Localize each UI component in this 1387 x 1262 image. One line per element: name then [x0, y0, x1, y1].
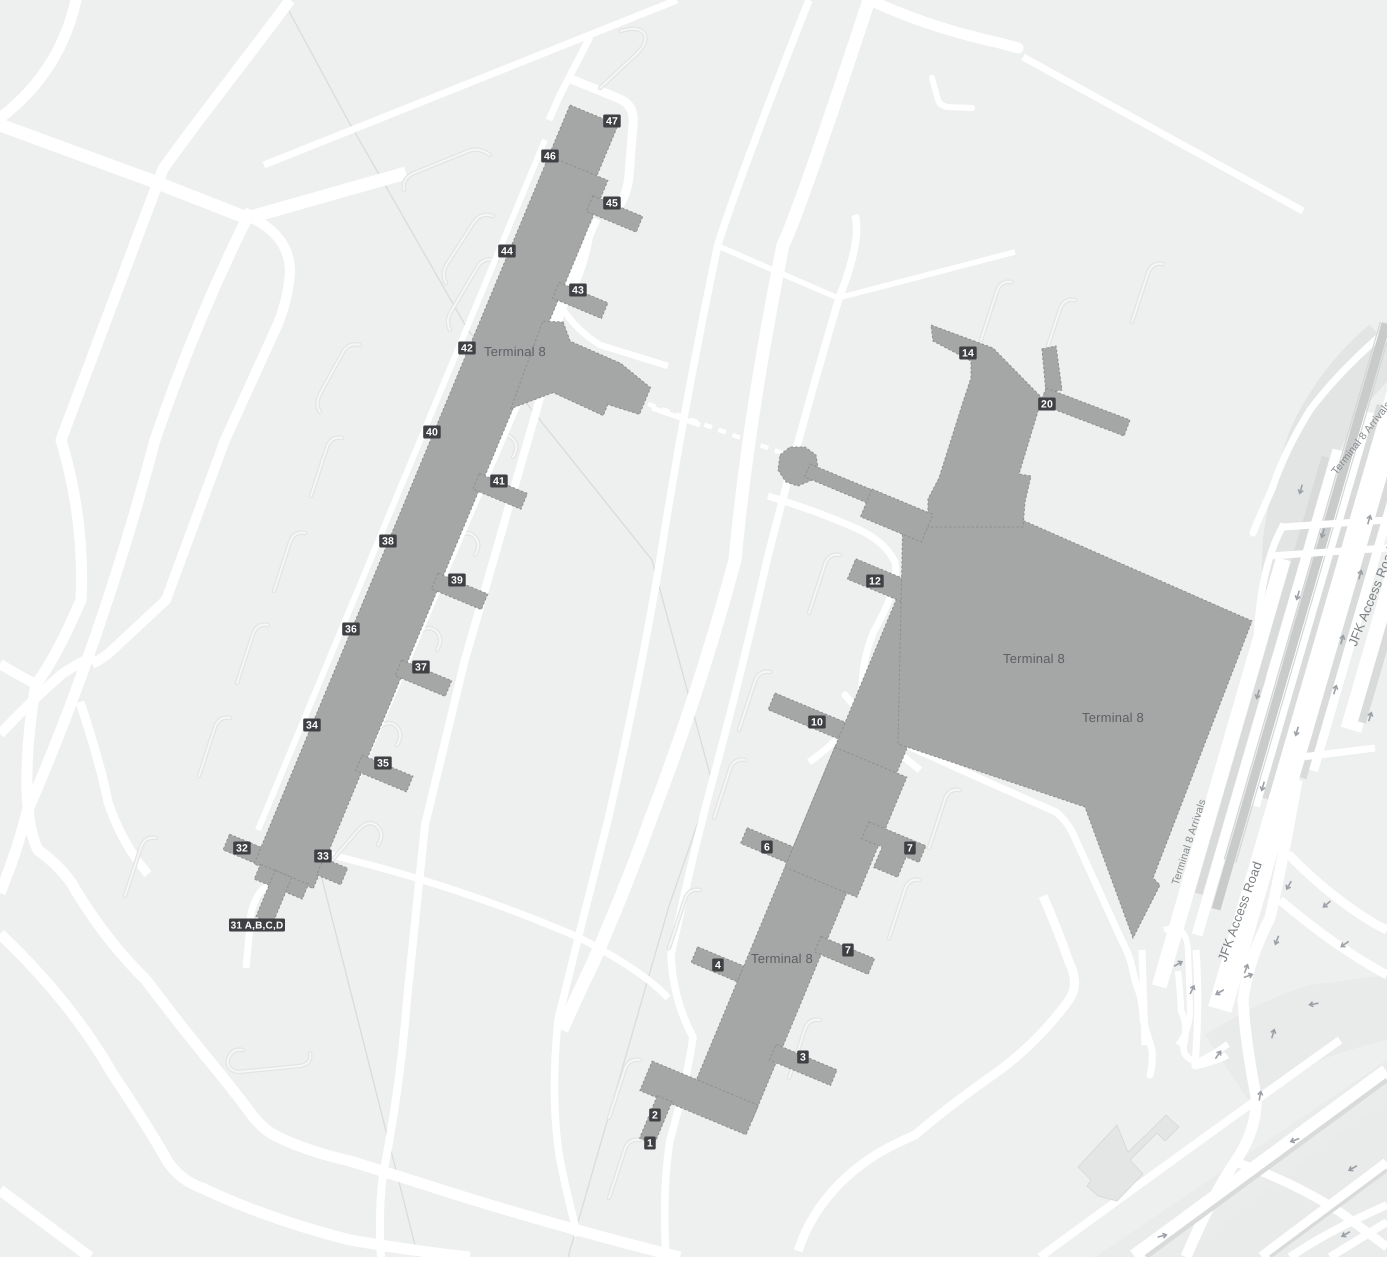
- svg-text:20: 20: [1041, 399, 1053, 411]
- svg-text:3: 3: [800, 1052, 806, 1064]
- svg-text:44: 44: [501, 246, 513, 258]
- svg-text:6: 6: [764, 842, 770, 854]
- svg-text:10: 10: [811, 717, 823, 729]
- svg-text:47: 47: [606, 116, 618, 128]
- svg-text:35: 35: [377, 758, 389, 770]
- svg-text:36: 36: [345, 624, 357, 636]
- svg-text:12: 12: [869, 576, 881, 588]
- svg-text:Terminal 8: Terminal 8: [1003, 651, 1065, 666]
- svg-text:31 A,B,C,D: 31 A,B,C,D: [231, 921, 284, 932]
- svg-text:40: 40: [426, 427, 438, 439]
- svg-text:Terminal 8: Terminal 8: [1082, 710, 1144, 725]
- svg-text:38: 38: [382, 536, 394, 548]
- svg-text:33: 33: [317, 851, 329, 863]
- svg-text:32: 32: [236, 843, 248, 855]
- svg-text:Terminal 8: Terminal 8: [484, 344, 546, 359]
- svg-text:45: 45: [606, 198, 618, 210]
- svg-text:41: 41: [493, 476, 505, 488]
- svg-text:7: 7: [907, 843, 913, 855]
- svg-text:14: 14: [962, 348, 974, 360]
- svg-text:37: 37: [415, 662, 427, 674]
- svg-text:42: 42: [461, 343, 473, 355]
- svg-text:39: 39: [451, 575, 463, 587]
- svg-text:1: 1: [647, 1138, 653, 1150]
- svg-text:7: 7: [845, 945, 851, 957]
- svg-text:4: 4: [715, 960, 721, 972]
- svg-text:46: 46: [544, 151, 556, 163]
- svg-text:43: 43: [572, 285, 584, 297]
- svg-text:2: 2: [652, 1110, 658, 1122]
- svg-text:Terminal 8: Terminal 8: [751, 951, 813, 966]
- svg-text:34: 34: [306, 720, 318, 732]
